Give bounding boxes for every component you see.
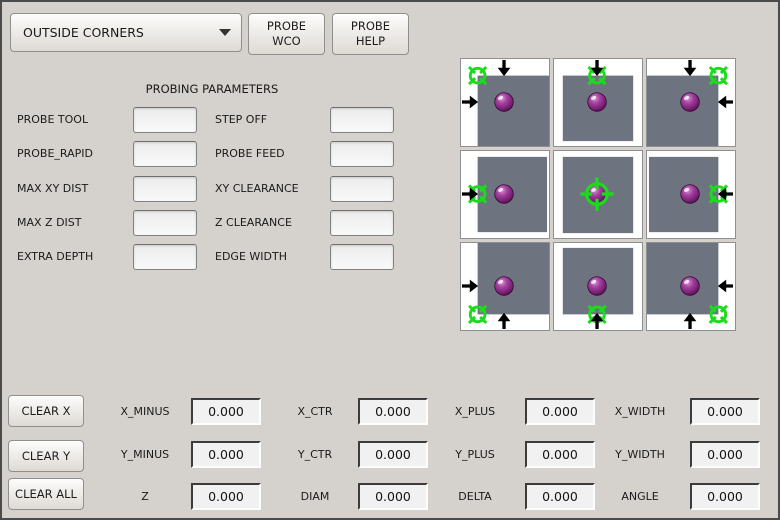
x-minus-value: 0.000 — [191, 398, 261, 425]
probe-edge-left-button[interactable] — [460, 150, 550, 239]
x-plus-value: 0.000 — [525, 398, 595, 425]
x-plus-label: X_PLUS — [430, 398, 520, 425]
y-plus-label: Y_PLUS — [430, 441, 520, 468]
edge-width-input[interactable] — [330, 244, 394, 270]
probe-corner-top-left-icon — [461, 59, 549, 146]
clear-y-button[interactable]: CLEAR Y — [8, 440, 84, 472]
probe-feed-label: PROBE FEED — [215, 141, 285, 167]
probe-rapid-label: PROBE_RAPID — [17, 141, 93, 167]
x-minus-label: X_MINUS — [100, 398, 190, 425]
probe-corner-bottom-left-icon — [461, 243, 549, 330]
probe-tool-label: PROBE TOOL — [17, 107, 88, 133]
y-width-label: Y_WIDTH — [595, 441, 685, 468]
clear-all-button[interactable]: CLEAR ALL — [8, 478, 84, 510]
probe-help-button[interactable]: PROBE HELP — [332, 13, 409, 55]
y-ctr-label: Y_CTR — [270, 441, 360, 468]
step-off-input[interactable] — [330, 107, 394, 133]
delta-value: 0.000 — [525, 483, 595, 510]
max-xy-dist-label: MAX XY DIST — [17, 176, 88, 202]
probe-outside-corner-bottom-right-button[interactable] — [646, 242, 736, 331]
clear-x-button[interactable]: CLEAR X — [8, 395, 84, 427]
y-minus-label: Y_MINUS — [100, 441, 190, 468]
probe-rapid-input[interactable] — [133, 141, 197, 167]
delta-label: DELTA — [430, 483, 520, 510]
diam-value: 0.000 — [358, 483, 428, 510]
y-ctr-value: 0.000 — [358, 441, 428, 468]
probe-edge-right-button[interactable] — [646, 150, 736, 239]
chevron-down-icon — [219, 29, 231, 36]
probe-mode-value: OUTSIDE CORNERS — [23, 25, 144, 40]
probe-position-grid — [460, 58, 736, 331]
probe-tool-input[interactable] — [133, 107, 197, 133]
probe-edge-top-button[interactable] — [553, 58, 643, 147]
z-clearance-label: Z CLEARANCE — [215, 210, 292, 236]
max-xy-dist-input[interactable] — [133, 176, 197, 202]
diam-label: DIAM — [270, 483, 360, 510]
max-z-dist-label: MAX Z DIST — [17, 210, 82, 236]
step-off-label: STEP OFF — [215, 107, 267, 133]
probe-center-button[interactable] — [553, 150, 643, 239]
max-z-dist-input[interactable] — [133, 210, 197, 236]
probe-edge-bottom-icon — [554, 243, 642, 330]
y-width-value: 0.000 — [690, 441, 760, 468]
probe-edge-top-icon — [554, 59, 642, 146]
probe-corner-bottom-right-icon — [647, 243, 735, 330]
probe-center-icon — [554, 151, 642, 238]
xy-clearance-label: XY CLEARANCE — [215, 176, 299, 202]
extra-depth-input[interactable] — [133, 244, 197, 270]
z-value: 0.000 — [191, 483, 261, 510]
probe-screen-window: OUTSIDE CORNERS PROBE WCO PROBE HELP PRO… — [0, 0, 780, 520]
angle-value: 0.000 — [690, 483, 760, 510]
angle-label: ANGLE — [595, 483, 685, 510]
probe-outside-corner-bottom-left-button[interactable] — [460, 242, 550, 331]
xy-clearance-input[interactable] — [330, 176, 394, 202]
extra-depth-label: EXTRA DEPTH — [17, 244, 93, 270]
x-width-label: X_WIDTH — [595, 398, 685, 425]
x-ctr-label: X_CTR — [270, 398, 360, 425]
z-label: Z — [100, 483, 190, 510]
y-minus-value: 0.000 — [191, 441, 261, 468]
x-width-value: 0.000 — [690, 398, 760, 425]
edge-width-label: EDGE WIDTH — [215, 244, 287, 270]
probe-wco-button[interactable]: PROBE WCO — [248, 13, 325, 55]
probe-feed-input[interactable] — [330, 141, 394, 167]
probe-edge-bottom-button[interactable] — [553, 242, 643, 331]
x-ctr-value: 0.000 — [358, 398, 428, 425]
probe-outside-corner-top-right-button[interactable] — [646, 58, 736, 147]
probe-edge-right-icon — [647, 151, 735, 238]
probe-edge-left-icon — [461, 151, 549, 238]
probing-parameters-title: PROBING PARAMETERS — [2, 82, 422, 96]
probe-outside-corner-top-left-button[interactable] — [460, 58, 550, 147]
probe-corner-top-right-icon — [647, 59, 735, 146]
probe-mode-dropdown[interactable]: OUTSIDE CORNERS — [10, 13, 242, 52]
z-clearance-input[interactable] — [330, 210, 394, 236]
y-plus-value: 0.000 — [525, 441, 595, 468]
